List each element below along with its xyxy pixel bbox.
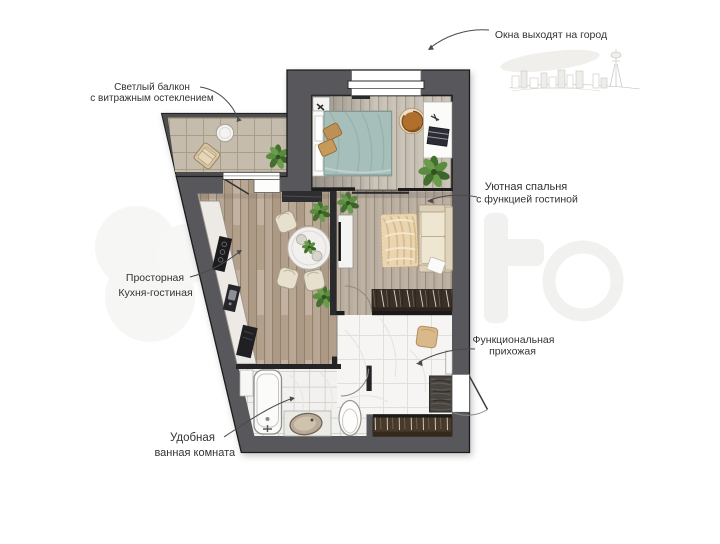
svg-text:Светлый балкон: Светлый балкон [114, 81, 190, 93]
svg-text:Кухня-гостиная: Кухня-гостиная [118, 287, 192, 299]
svg-text:с функцией гостиной: с функцией гостиной [476, 194, 578, 206]
svg-text:Функциональная: Функциональная [473, 334, 555, 346]
svg-text:прихожая: прихожая [489, 346, 536, 358]
svg-text:Удобная: Удобная [170, 432, 215, 444]
svg-text:с витражным остеклением: с витражным остеклением [90, 93, 214, 104]
svg-text:ванная комната: ванная комната [154, 447, 236, 459]
svg-text:Просторная: Просторная [126, 272, 184, 284]
svg-text:Уютная спальня: Уютная спальня [485, 181, 568, 193]
svg-text:Окна выходят на город: Окна выходят на город [495, 29, 607, 41]
